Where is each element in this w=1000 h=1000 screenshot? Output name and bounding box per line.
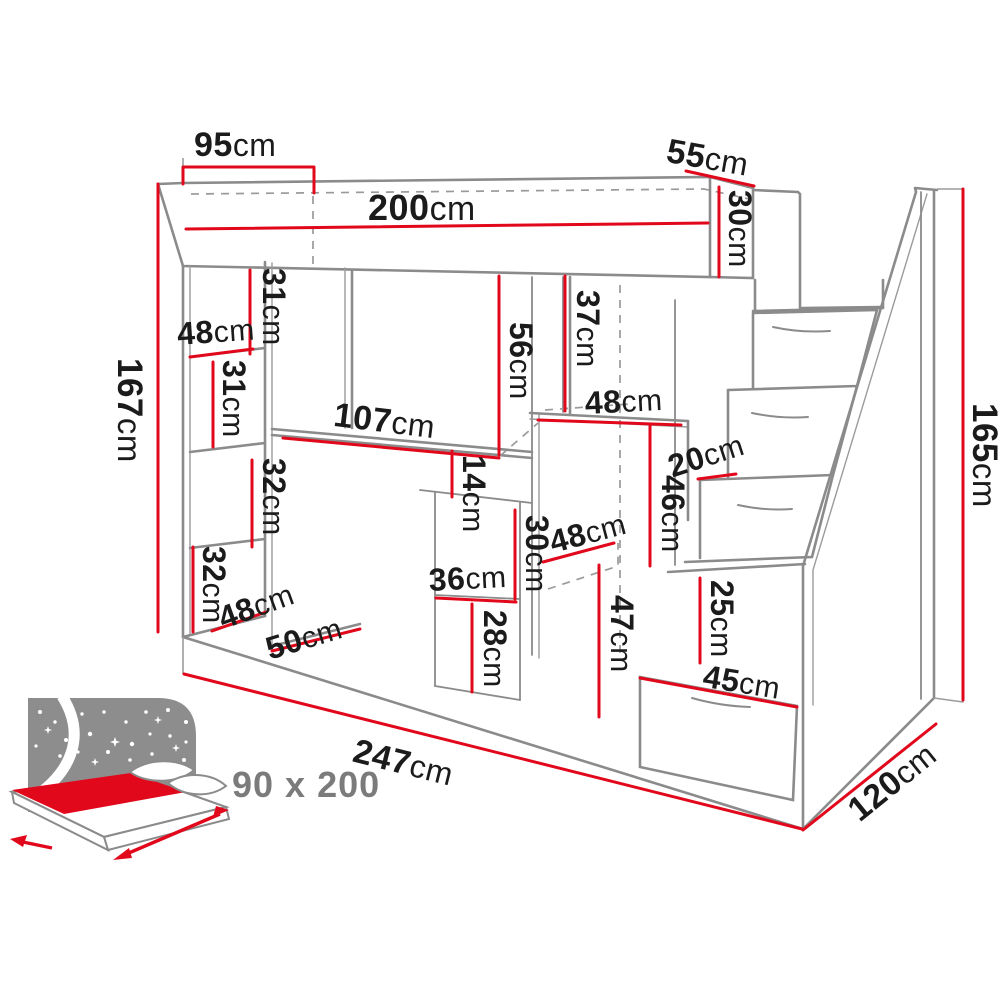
dim-under-desk-drawer: 36cm [428, 560, 507, 597]
dim-bed-length: 200cm [368, 190, 476, 227]
dim-stairs-side-height: 46cm [656, 475, 689, 553]
bed-icon [10, 696, 229, 860]
dim-left-total-height: 167cm [112, 358, 147, 463]
dim-right-total-height: 165cm [967, 403, 1000, 508]
dim-bed-top-overhang: 95cm [194, 128, 276, 162]
dim-wardrobe-lower-height: 47cm [605, 595, 638, 673]
dimension-diagram: 95cm 200cm 55cm 30cm 167cm 31cm 48cm 31c… [0, 0, 1000, 1000]
dim-shelf-compartment-2: 32cm [257, 458, 290, 536]
dim-desk-clearance-height: 56cm [504, 322, 537, 400]
bed-size-label: 90 x 200 [232, 764, 380, 806]
dim-stair-drawer-height: 25cm [705, 580, 738, 658]
dim-bed-frame-height: 30cm [723, 190, 756, 268]
dim-under-desk-lower: 28cm [478, 610, 511, 688]
diagram-canvas [0, 0, 1000, 1000]
dim-upper-right-space: 37cm [571, 290, 604, 368]
dim-wardrobe-top-width: 48cm [584, 383, 663, 420]
dim-shelf-compartment-1: 31cm [217, 360, 250, 438]
dim-upper-shelf-space: 31cm [257, 268, 290, 346]
dim-under-desk-gap: 14cm [457, 455, 490, 533]
dim-shelf-width-top: 48cm [176, 313, 256, 351]
dim-line-95 [183, 167, 314, 193]
